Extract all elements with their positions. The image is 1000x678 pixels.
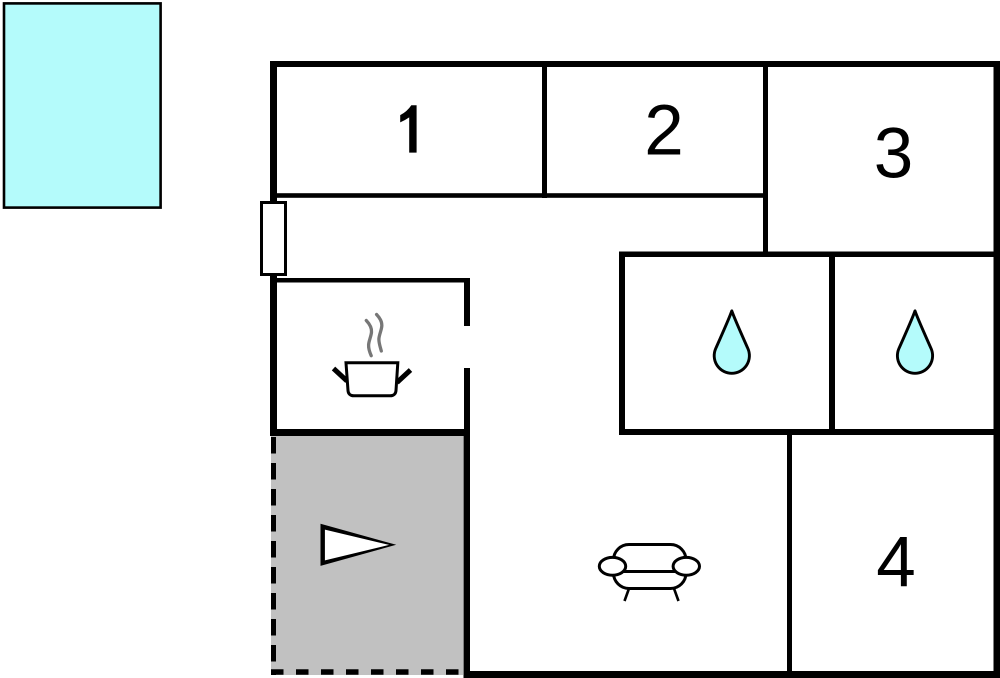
svg-text:4: 4 (876, 523, 916, 602)
svg-text:3: 3 (874, 115, 914, 194)
svg-text:2: 2 (644, 92, 684, 171)
